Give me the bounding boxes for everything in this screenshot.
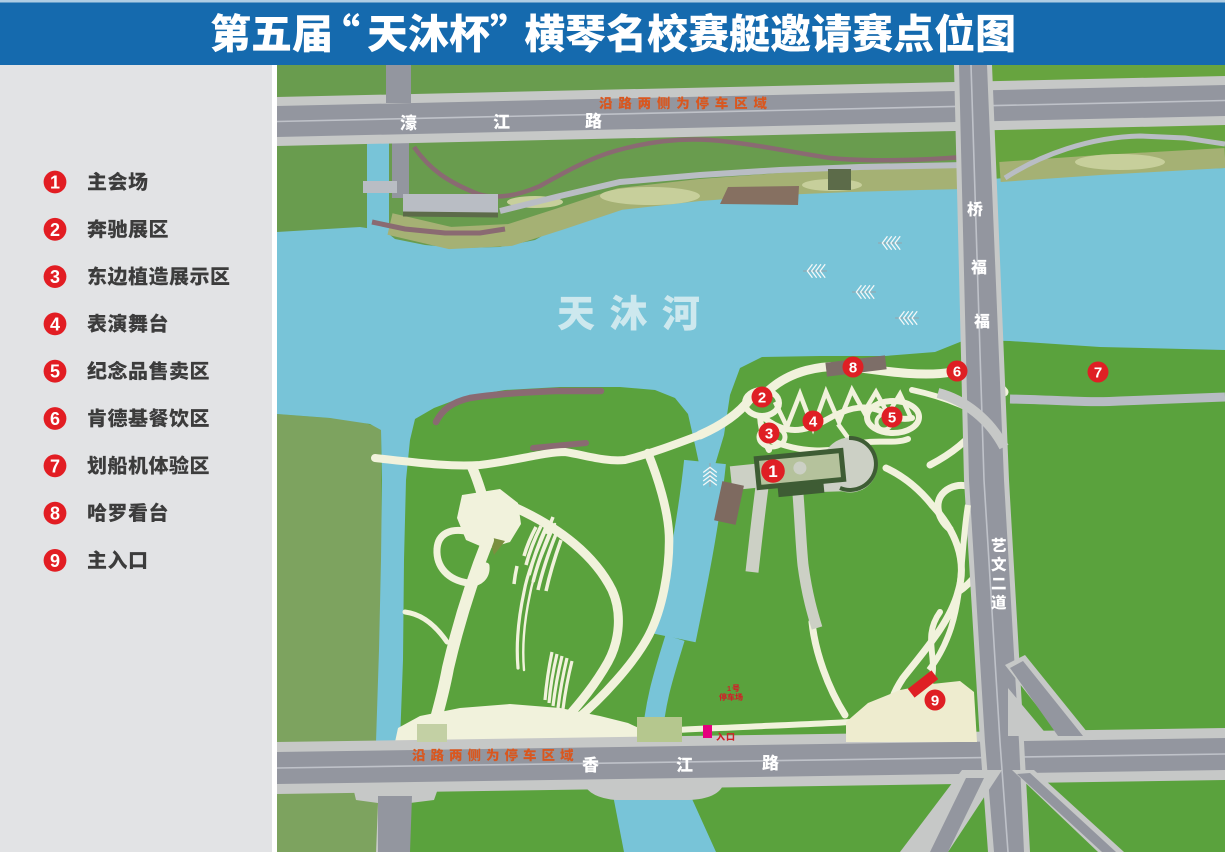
svg-text:2: 2 bbox=[758, 389, 766, 406]
svg-text:6: 6 bbox=[50, 409, 60, 429]
svg-text:9: 9 bbox=[931, 692, 939, 709]
svg-text:1: 1 bbox=[50, 173, 60, 193]
svg-text:8: 8 bbox=[50, 504, 60, 524]
svg-text:5: 5 bbox=[50, 362, 60, 382]
svg-text:6: 6 bbox=[953, 363, 961, 380]
svg-text:3: 3 bbox=[50, 267, 60, 287]
svg-text:2: 2 bbox=[50, 220, 60, 240]
svg-text:1: 1 bbox=[768, 462, 777, 481]
svg-text:4: 4 bbox=[50, 314, 60, 334]
svg-text:1: 1 bbox=[727, 684, 731, 693]
svg-text:7: 7 bbox=[50, 456, 60, 476]
svg-text:4: 4 bbox=[809, 413, 818, 430]
svg-text:5: 5 bbox=[888, 409, 896, 426]
svg-text:7: 7 bbox=[1094, 364, 1102, 381]
svg-text:3: 3 bbox=[765, 425, 773, 442]
svg-text:9: 9 bbox=[50, 551, 60, 571]
svg-text:8: 8 bbox=[849, 359, 857, 376]
